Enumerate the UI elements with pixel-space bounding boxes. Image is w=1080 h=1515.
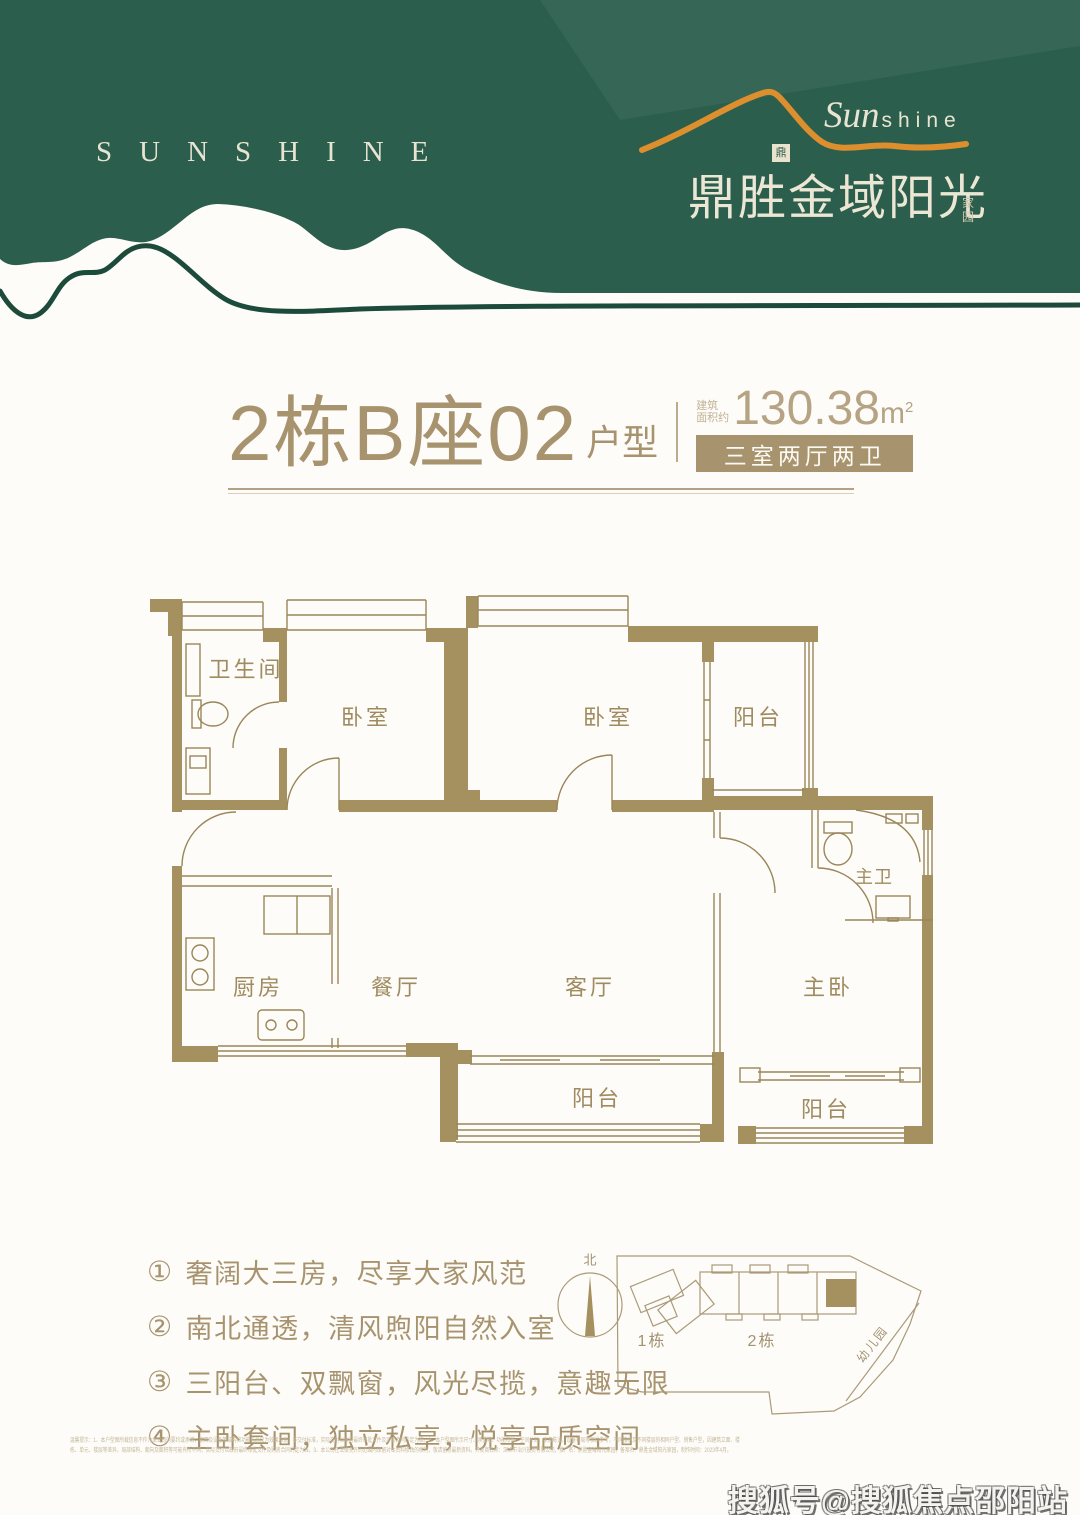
title-divider	[676, 402, 678, 462]
area-prefix-line1: 建筑	[696, 400, 729, 412]
disclaimer: 温馨提示：1、本户型图所载信息不作为本公司的要约或承诺，家具及设备等结构和功能布…	[70, 1436, 1014, 1456]
title-block: 2栋B座02 户型 建筑 面积约 130.38 m2 三室两厅两卫	[228, 386, 854, 490]
room-label-bedroom-1: 卧室	[341, 700, 391, 732]
room-label-bathroom: 卫生间	[208, 652, 283, 684]
room-label-master-bathroom: 主卫	[855, 863, 893, 889]
logo-script-shine: shine	[882, 109, 962, 132]
logo-script-sun: Sun	[824, 95, 880, 136]
room-label-kitchen: 厨房	[233, 970, 283, 1002]
feature-text: 奢阔大三房，尽享大家风范	[186, 1252, 528, 1291]
room-label-master-bedroom: 主卧	[803, 970, 853, 1002]
watermark: 搜狐号@搜狐焦点邵阳站	[728, 1476, 1068, 1515]
highlighted-unit	[826, 1279, 856, 1307]
layout-badge: 三室两厅两卫	[696, 435, 913, 472]
area-value: 130.38	[733, 386, 880, 432]
room-label-balcony-top: 阳台	[733, 700, 783, 732]
disclaimer-line-1: 温馨提示：1、本户型图所载信息不作为本公司的要约或承诺，家具及设备等结构和功能布…	[70, 1436, 806, 1446]
feature-number: ③	[147, 1365, 174, 1398]
building-1-label: 1栋	[638, 1327, 667, 1351]
feature-number: ①	[147, 1255, 174, 1288]
unit-title-suffix: 户型	[586, 414, 658, 478]
project-logo-name: 鼎胜金域阳光	[688, 158, 988, 228]
compass-needle	[585, 1276, 595, 1336]
floorplan-lines	[182, 596, 933, 1143]
area-unit: m2	[880, 397, 913, 432]
title-rule	[228, 488, 854, 490]
room-label-bedroom-2: 卧室	[583, 700, 633, 732]
unit-title: 2栋B座02	[228, 388, 578, 478]
feature-text: 南北通透，清风煦阳自然入室	[186, 1307, 557, 1346]
compass-north-label: 北	[583, 1250, 596, 1269]
room-label-dining-room: 餐厅	[371, 970, 421, 1002]
project-logo-suffix: 家园	[962, 196, 977, 224]
building-2-label: 2栋	[748, 1327, 777, 1351]
brand-wordmark: SUNSHINE	[96, 136, 455, 169]
room-label-balcony-center: 阳台	[572, 1081, 622, 1113]
site-plan	[540, 1240, 1020, 1430]
room-label-living-room: 客厅	[565, 970, 615, 1002]
seal-glyph: 鼎	[776, 148, 787, 159]
logo-script: Sunshine	[824, 94, 962, 137]
area-prefix: 建筑 面积约	[696, 400, 729, 432]
feature-number: ②	[147, 1310, 174, 1343]
poster-page: SUNSHINE Sunshine 鼎 鼎胜金域阳光 家园 2栋B座02 户型 …	[0, 0, 1080, 1515]
room-label-balcony-right: 阳台	[801, 1092, 851, 1124]
area-unit-exponent: 2	[905, 399, 913, 416]
area-prefix-line2: 面积约	[696, 412, 729, 424]
area-unit-letter: m	[880, 397, 905, 430]
disclaimer-line-2: 栋、单元、楼层等差异，局部结构、朝向及面积等可能有所不同，实际交付以政府最终审批…	[70, 1446, 806, 1456]
